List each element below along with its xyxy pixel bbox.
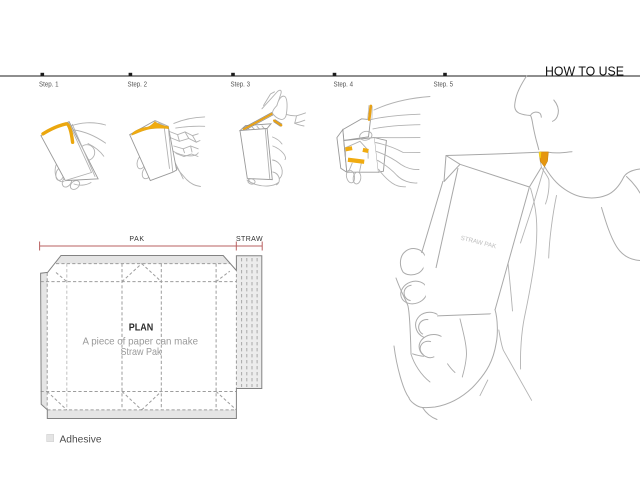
svg-text:PAK: PAK [129,236,144,243]
svg-text:HOW TO USE: HOW TO USE [545,64,624,79]
svg-text:Step. 5: Step. 5 [434,82,454,89]
svg-text:Step. 1: Step. 1 [39,82,59,89]
svg-text:PLAN: PLAN [129,323,154,334]
svg-text:Adhesive: Adhesive [60,434,102,446]
svg-text:Step. 4: Step. 4 [334,82,354,89]
svg-text:Step. 3: Step. 3 [231,82,251,89]
svg-text:A piece of paper can make: A piece of paper can make [83,336,199,347]
svg-text:STRAW: STRAW [236,236,263,243]
svg-text:Step. 2: Step. 2 [128,82,148,89]
svg-text:Straw Pak: Straw Pak [121,347,163,358]
